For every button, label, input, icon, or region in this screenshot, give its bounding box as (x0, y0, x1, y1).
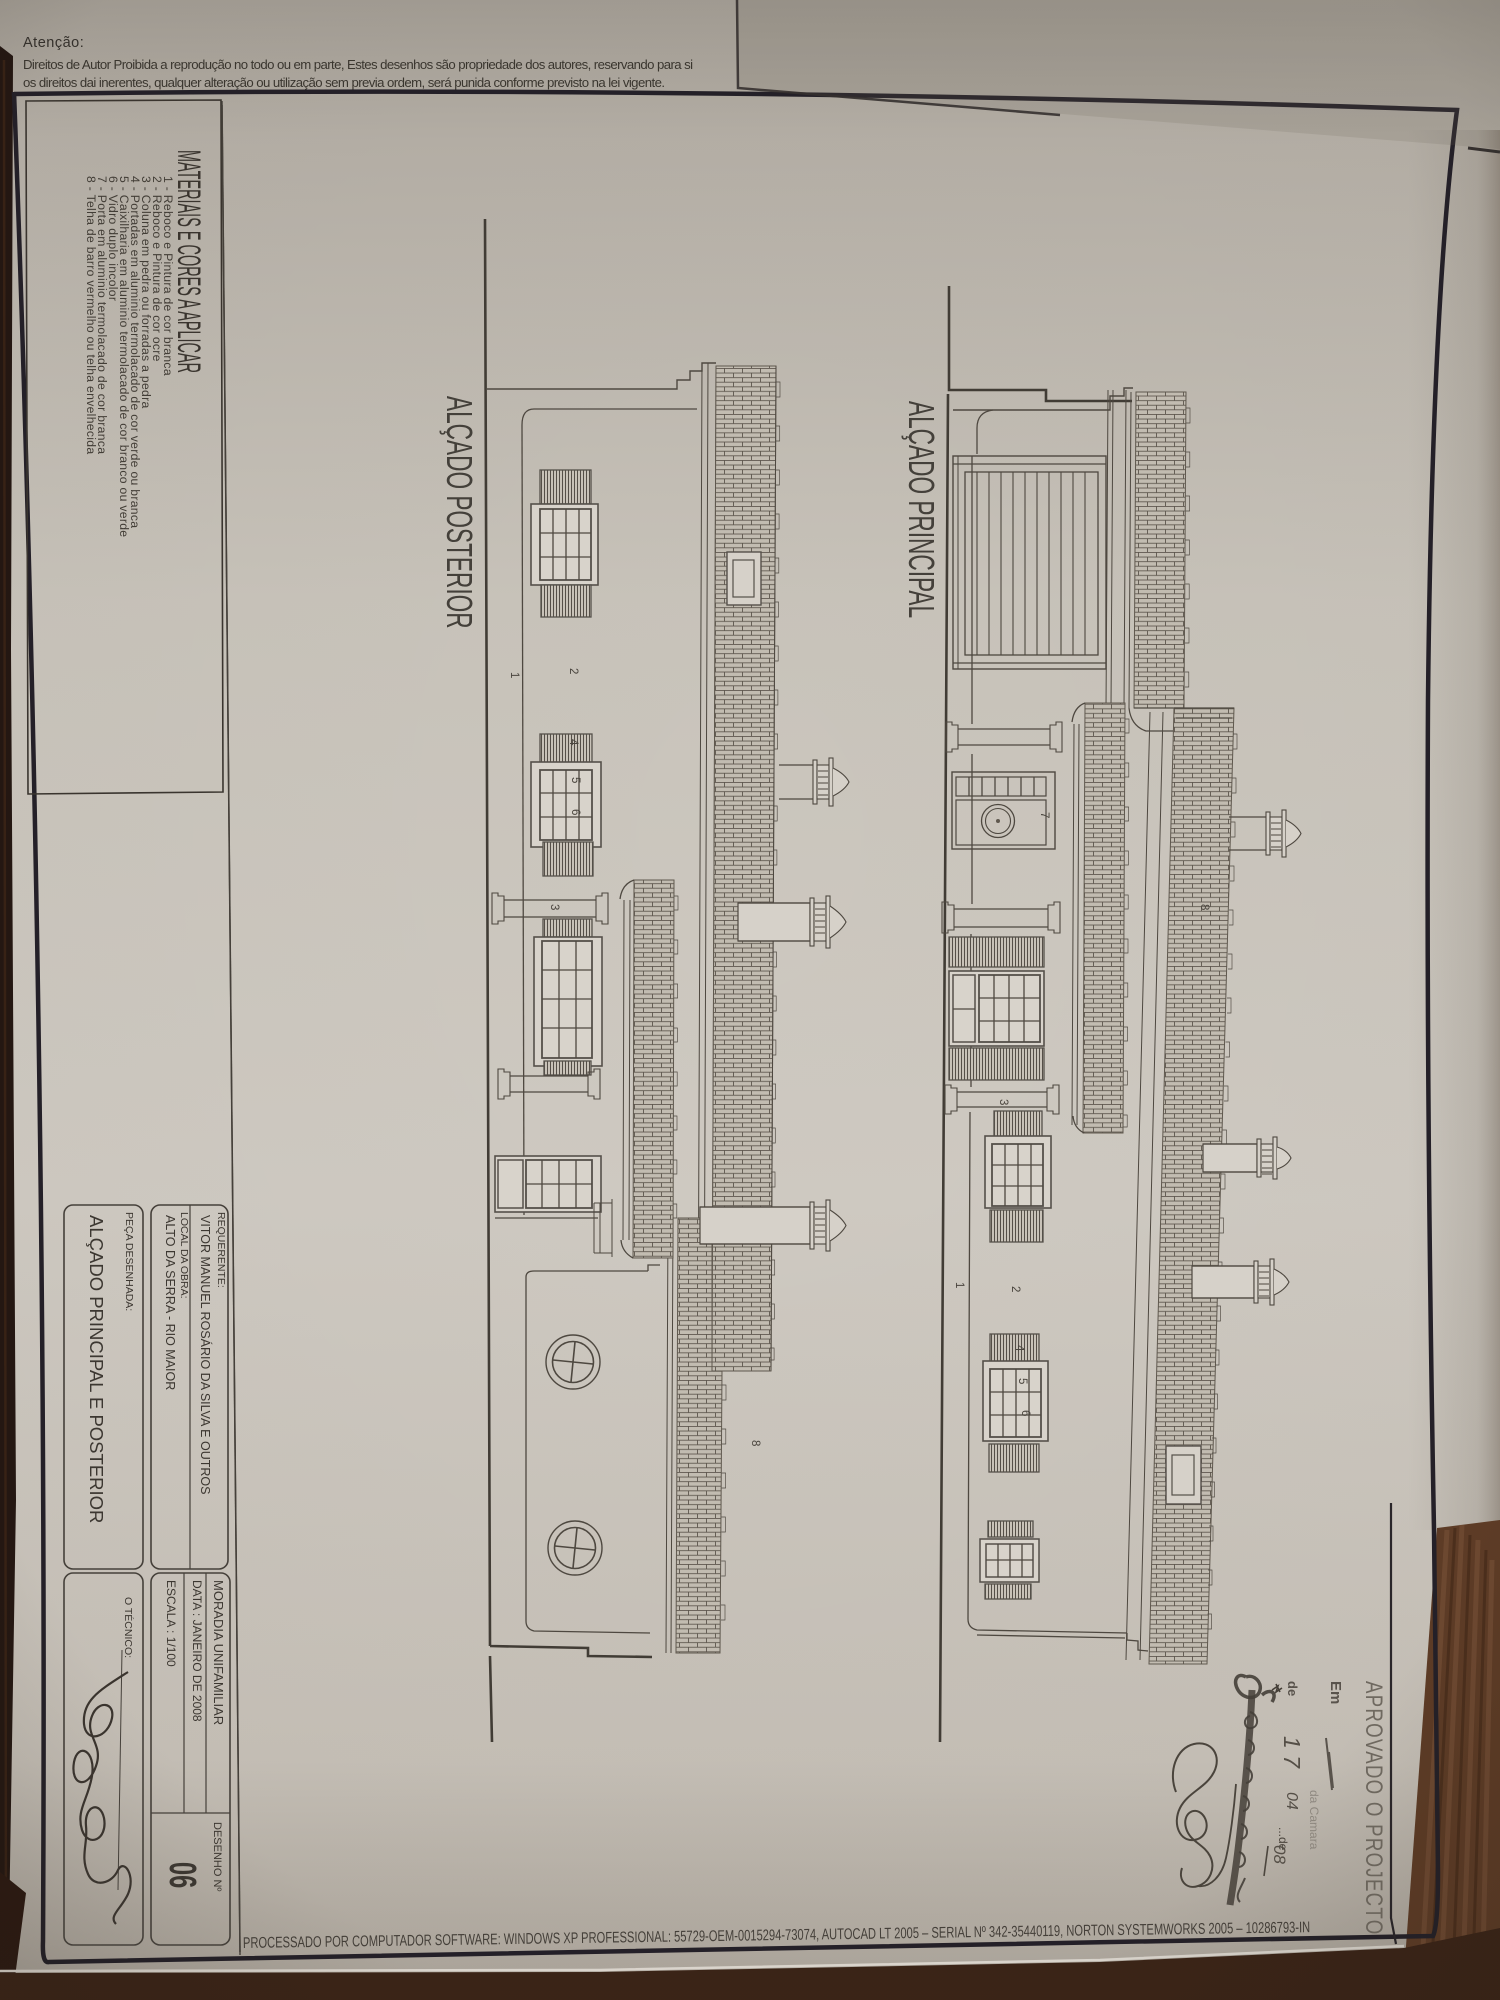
svg-text:3: 3 (997, 1099, 1009, 1105)
svg-text:3: 3 (548, 904, 560, 910)
svg-text:4: 4 (1013, 1345, 1025, 1352)
svg-text:DESENHO Nº: DESENHO Nº (211, 1822, 223, 1891)
svg-text:1: 1 (953, 1282, 965, 1288)
svg-text:2: 2 (1009, 1286, 1021, 1292)
svg-text:6: 6 (569, 809, 581, 815)
svg-text:MORADIA UNIFAMILIAR: MORADIA UNIFAMILIAR (211, 1580, 226, 1725)
svg-text:08: 08 (1270, 1845, 1289, 1864)
svg-text:2: 2 (567, 668, 579, 674)
svg-text:O TÉCNICO:: O TÉCNICO: (122, 1597, 135, 1658)
svg-text:ALÇADO PRINCIPAL E POSTERIOR: ALÇADO PRINCIPAL E POSTERIOR (86, 1215, 107, 1523)
svg-text:VITOR MANUEL ROSÁRIO DA SILVA: VITOR MANUEL ROSÁRIO DA SILVA E OUTROS (198, 1215, 213, 1494)
svg-text:04: 04 (1283, 1792, 1300, 1810)
svg-text:5: 5 (1016, 1378, 1028, 1384)
svg-text:ESCALA : 1/100: ESCALA : 1/100 (164, 1580, 178, 1667)
svg-text:ALTO DA SERRA - RIO MAIOR: ALTO DA SERRA - RIO MAIOR (163, 1215, 177, 1390)
svg-text:1: 1 (508, 672, 520, 678)
svg-text:REQUERENTE:: REQUERENTE: (215, 1212, 227, 1288)
svg-text:8: 8 (1198, 904, 1210, 910)
svg-text:APROVADO O PROJECTO: APROVADO O PROJECTO (1360, 1681, 1388, 1935)
svg-text:da Camara: da Camara (1307, 1790, 1321, 1850)
svg-text:7: 7 (1038, 812, 1050, 818)
svg-text:de: de (1285, 1681, 1300, 1696)
svg-text:4: 4 (567, 739, 579, 746)
svg-text:Em: Em (1327, 1681, 1344, 1704)
svg-text:DATA : JANEIRO DE 2008: DATA : JANEIRO DE 2008 (190, 1580, 204, 1722)
svg-text:PEÇA DESENHADA:: PEÇA DESENHADA: (123, 1212, 135, 1311)
svg-text:8: 8 (749, 1440, 761, 1446)
svg-text:LOCAL DA OBRA:: LOCAL DA OBRA: (178, 1212, 190, 1299)
svg-text:06: 06 (162, 1862, 205, 1888)
svg-text:6: 6 (1019, 1410, 1031, 1416)
svg-text:5: 5 (569, 777, 581, 783)
svg-text:1 7: 1 7 (1279, 1736, 1305, 1769)
